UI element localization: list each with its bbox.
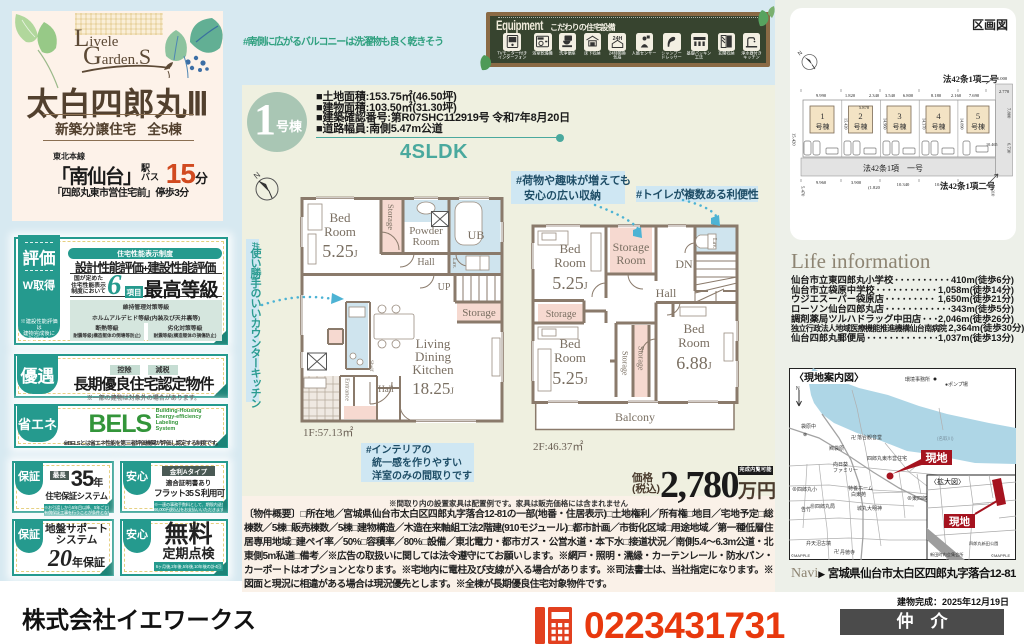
svg-text:2.160: 2.160 [951, 93, 962, 98]
svg-text:5.470: 5.470 [801, 186, 806, 197]
svg-text:(名取川): (名取川) [937, 435, 954, 442]
svg-text:8.180: 8.180 [931, 93, 942, 98]
svg-text:⊗四郎丸小: ⊗四郎丸小 [792, 486, 817, 493]
svg-text:号棟: 号棟 [893, 122, 907, 131]
svg-text:号棟: 号棟 [854, 122, 868, 131]
svg-text:10.465: 10.465 [986, 142, 998, 147]
svg-text:告竹: 告竹 [801, 506, 811, 513]
svg-text:区画図: 区画図 [972, 18, 1008, 32]
svg-text:ファミリー: ファミリー [833, 468, 858, 474]
svg-text:特養ホーム: 特養ホーム [848, 485, 873, 492]
svg-text:向日葵: 向日葵 [833, 461, 848, 468]
svg-text:四郎丸東市営住宅: 四郎丸東市営住宅 [867, 455, 907, 462]
svg-text:24H: 24H [612, 36, 622, 42]
svg-text:卍: 卍 [834, 549, 839, 555]
svg-text:㈱袋原: ㈱袋原 [829, 445, 844, 452]
svg-text:5.25J: 5.25J [552, 368, 588, 388]
svg-text:〈現地案内図〉: 〈現地案内図〉 [794, 371, 864, 384]
svg-text:四郎丸新田公園: 四郎丸新田公園 [969, 540, 998, 547]
svg-text:3: 3 [897, 111, 901, 121]
svg-text:袋原中: 袋原中 [801, 423, 816, 430]
svg-text:14.370: 14.370 [922, 118, 927, 130]
svg-text:号棟: 号棟 [816, 122, 830, 131]
svg-text:6.88J: 6.88J [676, 353, 712, 373]
svg-text:6.800: 6.800 [903, 93, 914, 98]
svg-text:Entrance: Entrance [344, 378, 351, 401]
svg-text:Balcony: Balcony [615, 410, 655, 424]
svg-text:3.540: 3.540 [885, 93, 896, 98]
svg-text:Hall: Hall [378, 384, 394, 394]
svg-text:環境事務所: 環境事務所 [905, 376, 930, 383]
svg-text:18.25J: 18.25J [412, 379, 454, 398]
svg-text:城丸大明神: 城丸大明神 [857, 505, 882, 512]
svg-text:〈拡大図〉: 〈拡大図〉 [930, 477, 965, 486]
svg-text:©MAPPLE: ©MAPPLE [991, 553, 1011, 558]
svg-text:新田町内会集会所: 新田町内会集会所 [930, 551, 964, 558]
svg-text:現地: 現地 [926, 451, 948, 465]
svg-text:白東苑: 白東苑 [851, 491, 866, 498]
svg-text:法42条1項 一号: 法42条1項 一号 [863, 163, 923, 173]
svg-text:N: N [797, 50, 804, 57]
svg-text:現地: 現地 [949, 515, 970, 528]
svg-text:法42条1項二号: 法42条1項二号 [940, 181, 996, 191]
svg-text:14.960: 14.960 [883, 118, 888, 130]
svg-text:1.820: 1.820 [845, 93, 856, 98]
svg-text:15.420: 15.420 [792, 133, 797, 146]
svg-text:5.000: 5.000 [997, 76, 1008, 81]
svg-text:9.990: 9.990 [816, 93, 827, 98]
svg-text:(1.820: (1.820 [868, 185, 881, 190]
svg-text:3.900: 3.900 [851, 180, 862, 185]
svg-text:㊞四郎丸局: ㊞四郎丸局 [810, 503, 835, 510]
svg-text:15.420: 15.420 [844, 118, 849, 130]
svg-text:落合観音堂: 落合観音堂 [857, 434, 882, 441]
svg-text:7.690: 7.690 [969, 93, 980, 98]
svg-text:Kitchen: Kitchen [412, 362, 454, 377]
svg-text:2.770: 2.770 [999, 89, 1010, 94]
svg-text:N: N [796, 386, 800, 392]
svg-text:5: 5 [976, 111, 980, 121]
svg-text:Storage: Storage [621, 351, 630, 376]
svg-text:法42条1項二号: 法42条1項二号 [943, 74, 999, 84]
svg-text:号棟: 号棟 [932, 122, 946, 131]
svg-text:6.730: 6.730 [1007, 143, 1012, 154]
svg-text:Room: Room [554, 350, 586, 365]
svg-text:5.870: 5.870 [859, 105, 870, 110]
svg-text:©MAPPLE: ©MAPPLE [791, 553, 811, 558]
svg-text:9.960: 9.960 [816, 180, 827, 185]
svg-text:1: 1 [820, 111, 824, 121]
svg-text:号棟: 号棟 [971, 122, 985, 131]
svg-text:弁天沼古墳: 弁天沼古墳 [806, 540, 831, 547]
svg-text:卍: 卍 [851, 435, 856, 441]
svg-text:7.800: 7.800 [1007, 108, 1012, 119]
svg-text:2.340: 2.340 [869, 93, 880, 98]
svg-text:10.340: 10.340 [897, 182, 910, 187]
svg-text:●ポンプ場: ●ポンプ場 [945, 381, 968, 388]
svg-text:Storage: Storage [637, 346, 646, 371]
svg-text:14.090: 14.090 [960, 118, 965, 130]
svg-text:⊗: ⊗ [803, 432, 807, 438]
svg-text:Shelf: Shelf [368, 360, 375, 372]
svg-text:2: 2 [858, 111, 862, 121]
svg-text:丹徳寺: 丹徳寺 [840, 549, 855, 556]
